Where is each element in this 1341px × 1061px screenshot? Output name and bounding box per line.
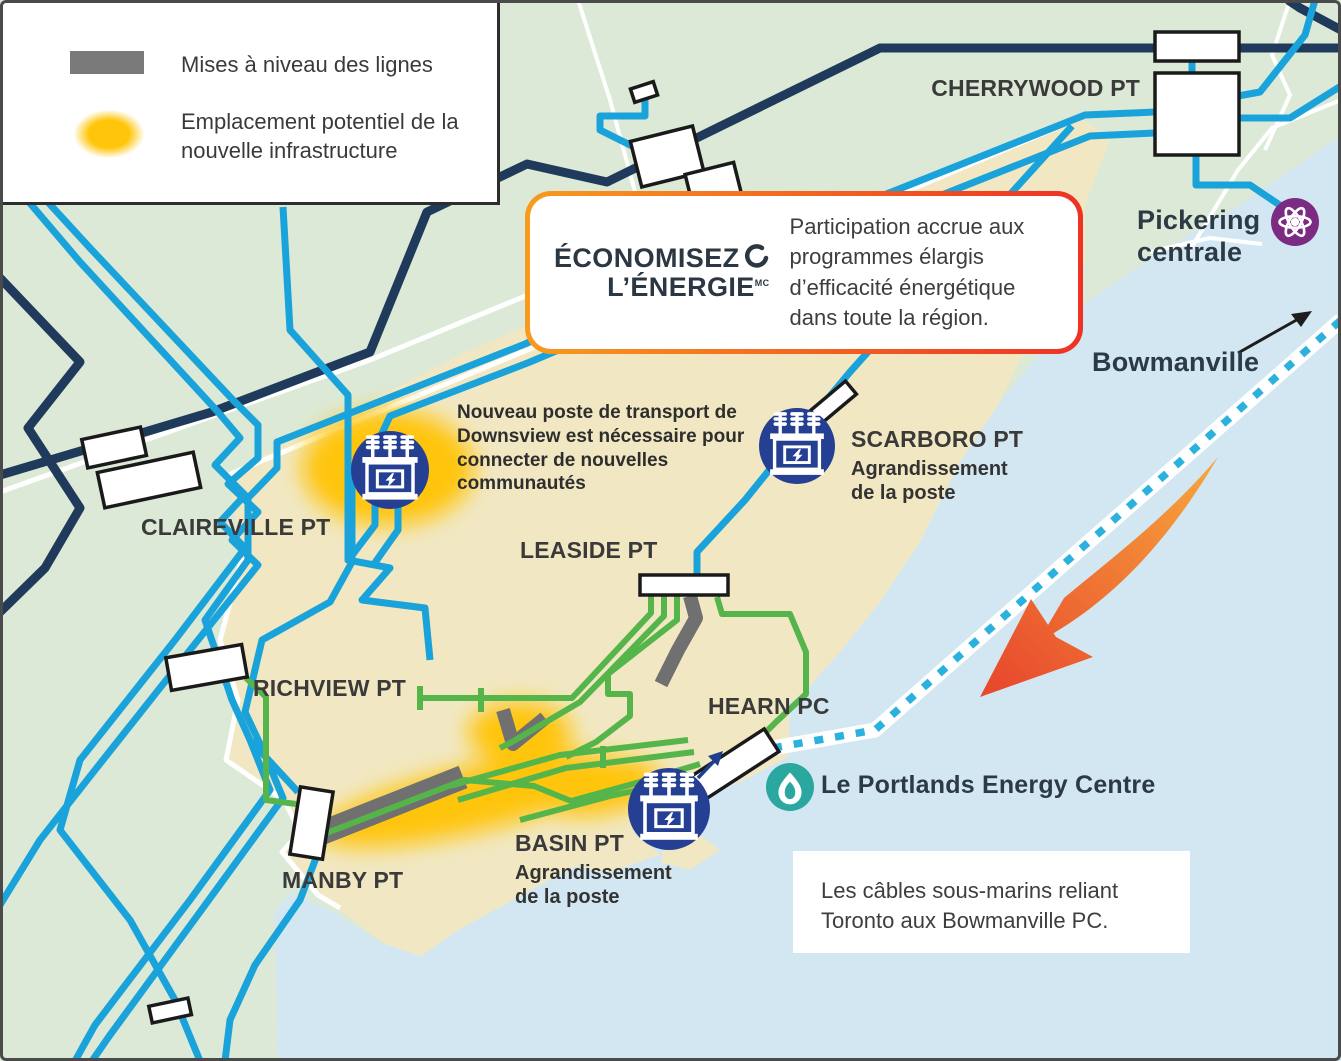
callout-text: Participation accrue aux programmes élar… (790, 212, 1054, 333)
legend-item-line-upgrades: Mises à niveau des lignes (181, 50, 481, 79)
note-submarine: Les câbles sous-marins reliant Toronto a… (821, 878, 1118, 933)
downsview-substation-icon (351, 431, 429, 509)
pickering-atom-icon (1271, 198, 1319, 246)
scarboro-substation-icon (759, 408, 835, 484)
line-upgrade-swatch (70, 51, 144, 74)
loop-swirl-icon (740, 243, 770, 273)
legend: Mises à niveau des lignes Emplacement po… (3, 3, 500, 205)
station-leaside (640, 575, 728, 595)
basin-substation-icon (628, 768, 710, 850)
submarine-note-box: Les câbles sous-marins reliant Toronto a… (793, 851, 1190, 953)
legend-item-new-infrastructure: Emplacement potentiel de la nouvelle inf… (181, 107, 481, 165)
portlands-flame-icon (766, 763, 814, 811)
save-energy-callout: ÉCONOMISEZ L’ÉNERGIEMC Participation acc… (525, 191, 1083, 354)
logo-line1: ÉCONOMISEZ (554, 244, 740, 272)
energy-map-canvas: CHERRYWOOD PT Pickering centrale Bowmanv… (0, 0, 1341, 1061)
station-cherrywood-top (1155, 32, 1239, 61)
yellow-blob-swatch (61, 101, 157, 167)
station-cherrywood-main (1155, 73, 1239, 155)
logo-line2: L’ÉNERGIE (607, 272, 755, 302)
economisez-energie-logo: ÉCONOMISEZ L’ÉNERGIEMC (554, 243, 770, 301)
logo-trademark: MC (755, 278, 770, 288)
